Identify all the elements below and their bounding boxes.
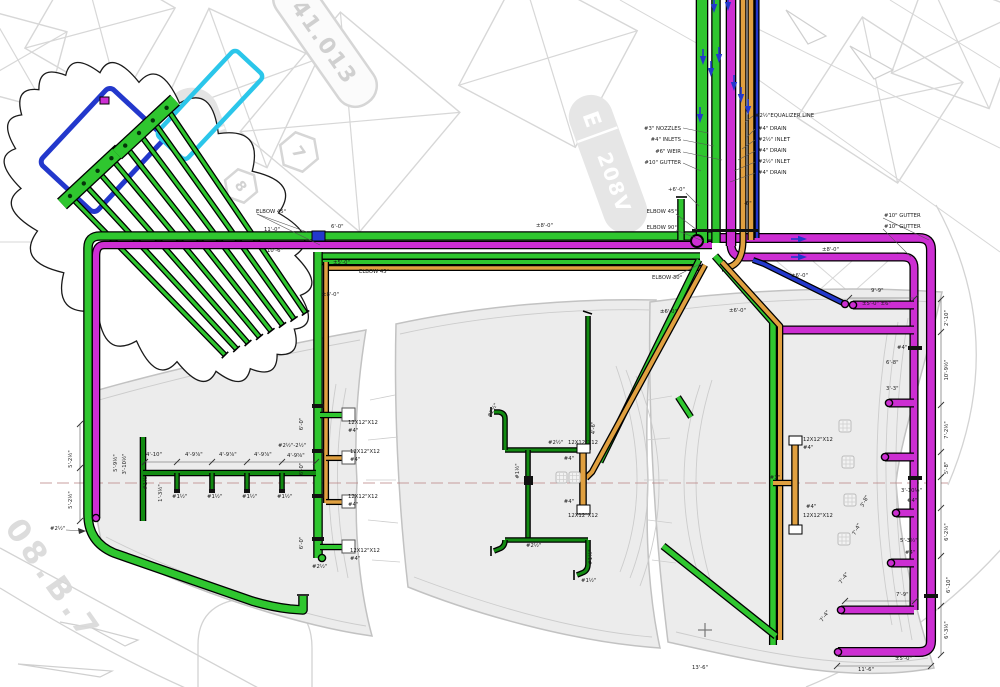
- envelope-diamond: [797, 17, 963, 183]
- pipe-coupling: [244, 489, 250, 493]
- pipe-coupling: [312, 494, 324, 498]
- annotation-label: 5'-2½": [67, 450, 74, 468]
- annotation-label: ±8'-0": [822, 247, 839, 253]
- annotation-label: ±6'-0": [660, 309, 677, 315]
- annotation-label: 12X12"X12: [348, 420, 378, 426]
- annotation-label: 12X12"X12: [568, 440, 598, 446]
- floor-drain-grate: [844, 494, 856, 506]
- pipe-bulb-cap: [885, 399, 892, 406]
- annotation-label: #4": [806, 504, 816, 510]
- annotation-label: 4'-9⅞": [185, 452, 203, 458]
- annotation-label: #4": [564, 456, 574, 462]
- annotation-label: 10'-6": [267, 248, 283, 254]
- annotation-label: #1½": [581, 577, 596, 584]
- annotation-label: #6" WEIR: [655, 149, 681, 155]
- annotation-label: +6'-0": [668, 187, 685, 193]
- annotation-label: #1½": [172, 493, 187, 500]
- leader-arrow: [18, 664, 112, 677]
- pipe-coupling: [312, 404, 324, 408]
- annotation-label: #4" DRAIN: [758, 148, 787, 154]
- leader-arrowhead: [78, 528, 86, 534]
- annotation-label: #10" GUTTER: [644, 160, 681, 166]
- annotation-label: 3'-10½": [901, 487, 922, 494]
- annotation-label: 6'-0": [299, 418, 305, 431]
- manifold-valve: [100, 97, 109, 104]
- annotation-label: #1½": [242, 493, 257, 500]
- annotation-label: 4'-6": [591, 422, 597, 435]
- pipe-bulb-cap: [92, 514, 99, 521]
- construction-line: [620, 0, 700, 45]
- annotation-label: #2½": [312, 563, 327, 570]
- pipe-bulb-cap: [841, 300, 848, 307]
- annotation-label: #2½": [50, 525, 65, 532]
- annotation-label: 7'-9": [896, 592, 909, 598]
- equalizer-fitting: [312, 231, 325, 241]
- annotation-label: 2'-10": [944, 310, 950, 326]
- annotation-label: #2½" INLET: [758, 136, 791, 143]
- annotation-label: #10" GUTTER: [884, 224, 921, 230]
- annotation-label: 11'-6": [858, 667, 874, 673]
- annotation-label: 11'-0": [264, 227, 280, 233]
- annotation-label: 3'-3": [886, 386, 899, 392]
- pipe-end-cap: [789, 436, 802, 445]
- construction-line: [890, 0, 1000, 68]
- annotation-label: #4": [348, 428, 358, 434]
- annotation-label: #4": [905, 550, 915, 556]
- annotation-label: ±6'-0": [791, 273, 808, 279]
- pipe-coupling: [908, 476, 922, 480]
- annotation-label: 4'-9⅝": [287, 453, 305, 459]
- annotation-label: #1½": [514, 463, 521, 478]
- pipe-coupling: [924, 594, 938, 598]
- annotation-label: 6'-0": [299, 463, 305, 476]
- envelope-diamond: [891, 0, 1000, 109]
- annotation-label: 4'-9⅞": [254, 452, 272, 458]
- annotation-label: #4": [907, 498, 917, 504]
- annotation-label: 9'-9": [871, 288, 884, 294]
- annotation-label: #3" NOZZLES: [644, 126, 682, 132]
- annotation-label: ELBOW 90°: [647, 225, 678, 231]
- floor-drain-grate: [839, 420, 851, 432]
- electrical-tag-pill: E 208V: [563, 89, 654, 240]
- annotation-label: #2½" INLET: [758, 158, 791, 165]
- pipe-coupling: [312, 537, 324, 541]
- annotation-label: #3": [770, 475, 780, 481]
- floor-drain-grate: [556, 472, 567, 483]
- annotation-label: 6'-8": [886, 360, 899, 366]
- annotation-label: 12X12"X12: [568, 513, 598, 519]
- annotation-label: ±8'-0": [536, 223, 553, 229]
- pipe-coupling: [174, 489, 180, 493]
- main-pipe-bundle: [702, 0, 757, 268]
- annotation-label: ELBOW 30°: [652, 275, 683, 281]
- annotation-label: ±8'-0": [322, 292, 339, 298]
- pipe-bulb-cap: [318, 554, 325, 561]
- annotation-label: #4": [350, 457, 360, 463]
- annotation-label: #4" DRAIN: [758, 170, 787, 176]
- sheet-ref-tag: 41.013: [265, 0, 384, 115]
- annotation-label: 10'-9½": [943, 359, 950, 380]
- leader-arrow: [850, 46, 893, 79]
- piping-plan-canvas: E 208V E 208V 41.013 7 8: [0, 0, 1000, 687]
- annotation-label: #2½"EQUALIZER LINE: [755, 112, 815, 119]
- annotation-label: 4'-10": [146, 452, 162, 458]
- pipe-bulb-cap: [881, 453, 888, 460]
- annotation-label: 12X12"X12: [350, 449, 380, 455]
- annotation-label: 13'-6": [692, 665, 708, 671]
- pipe-bulb-cap: [887, 559, 894, 566]
- floor-drain-grate: [838, 533, 850, 545]
- construction-line: [756, 28, 1000, 148]
- annotation-label: #1½": [277, 493, 292, 500]
- pipe-bulb-cap: [892, 509, 899, 516]
- floor-drain-grate: [569, 472, 580, 483]
- annotation-label: #4": [897, 345, 907, 351]
- pipe-coupling: [908, 346, 922, 350]
- annotation-label: #10" GUTTER: [884, 213, 921, 219]
- annotation-label: 5'-2½": [67, 491, 74, 509]
- annotation-label: 4'-9⅞": [219, 452, 237, 458]
- site-path-line: [936, 205, 976, 485]
- annotation-label: 12X12"X12: [803, 513, 833, 519]
- annotation-label: ±5'-0": [895, 656, 912, 662]
- pipe-coupling: [209, 489, 215, 493]
- annotation-label: -6": [744, 201, 752, 207]
- annotation-label: 12X12"X12: [350, 548, 380, 554]
- annotation-label: #4": [348, 502, 358, 508]
- annotation-label: 5'-3½": [900, 537, 918, 544]
- annotation-label: #4" INLETS: [651, 137, 682, 143]
- annotation-label: #4": [564, 499, 574, 505]
- pipe-end-cap: [789, 525, 802, 534]
- annotation-label: ±6'-0": [729, 308, 746, 314]
- drawing-sheet: E 208V E 208V 41.013 7 8: [0, 0, 1000, 687]
- annotation-label: 6'-0": [299, 537, 305, 550]
- pipe-coupling: [279, 489, 285, 493]
- annotation-label: ±5'-0": [333, 260, 350, 266]
- annotation-label: #4": [350, 556, 360, 562]
- annotation-label: 12X12"X12: [803, 437, 833, 443]
- annotation-label: 6'-3½": [943, 621, 950, 639]
- pipe-coupling: [312, 449, 324, 453]
- pipe-bulb-cap: [837, 606, 844, 613]
- annotation-label: 7'-2½": [943, 421, 950, 439]
- annotation-label: 12X12"X12: [348, 494, 378, 500]
- annotation-label: 6'-2½": [943, 523, 950, 541]
- annotation-label: ELBOW 45°: [359, 269, 390, 275]
- annotation-label: #1½": [207, 493, 222, 500]
- pipe-coupling: [524, 476, 533, 485]
- pipe-coupling: [692, 229, 758, 232]
- annotation-label: #4" DRAIN: [758, 126, 787, 132]
- annotation-label: #2½": [526, 542, 541, 549]
- annotation-label: 5'-8": [944, 462, 950, 475]
- annotation-label: 5'-9½": [112, 454, 119, 472]
- pipe-bulb-cap: [834, 648, 841, 655]
- annotation-label: #2½": [548, 439, 563, 446]
- annotation-label: 6'-0": [331, 224, 344, 230]
- annotation-label: #4": [803, 445, 813, 451]
- annotation-label: #2½"-2½": [278, 442, 306, 449]
- annotation-label: #1½": [142, 474, 149, 489]
- floor-drain-grate: [842, 456, 854, 468]
- leader-arrow: [786, 10, 826, 44]
- annotation-label: ELBOW 45°: [256, 209, 287, 215]
- pipe-bulb-cap: [849, 301, 856, 308]
- construction-line: [756, 78, 1000, 252]
- annotation-label: 3'-10½": [121, 453, 128, 474]
- annotation-label: ±5'-0" ±6": [862, 301, 891, 307]
- annotation-label: ELBOW 45°: [647, 209, 678, 215]
- annotation-label: #1½": [587, 549, 594, 564]
- annotation-label: 1'-3½": [157, 484, 164, 502]
- annotation-label: 6'-10": [946, 577, 952, 593]
